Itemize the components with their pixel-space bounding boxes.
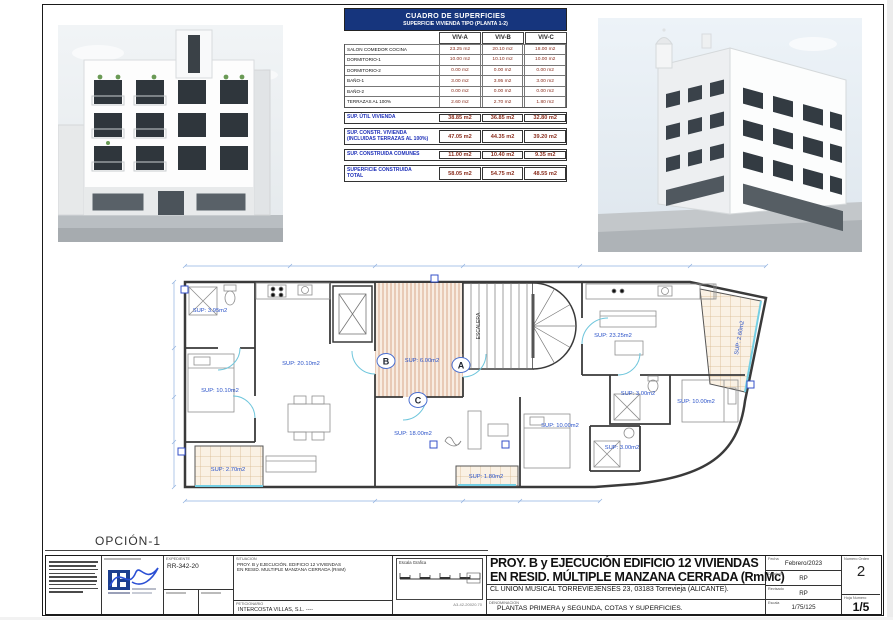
revisado-row: Revisado RP <box>766 586 841 601</box>
project-small-line2: EN RESID. MULTIPLE MANZANA CERRADA (RmM) <box>237 567 389 572</box>
situacion-box: SITUACION PROY. B y EJECUCIÓN. EDIFICIO … <box>234 556 393 614</box>
sheet-code: A3-42-20020.70 <box>393 600 486 607</box>
surface-table-body: SALON COMEDOR COCINA 23.25 m2 20.10 m2 1… <box>344 44 567 109</box>
denominacion-row: DENOMINACION PLANTAS PRIMERA y SEGUNDA, … <box>487 599 765 614</box>
building-render-front <box>58 25 283 247</box>
numero-orden-value: 2 <box>842 563 880 580</box>
project-title-line1: PROY. B y EJECUCIÓN EDIFICIO 12 VIVIENDA… <box>487 556 765 570</box>
surface-table-header: CUADRO DE SUPERFICIES SUPERFICIE VIVIEND… <box>344 8 567 31</box>
hoja-cell: Hoja Numero 1/5 <box>842 595 880 614</box>
peticionario-row: PETICIONARIO INTERCOSTA VILLAS, S.L. ---… <box>234 600 392 614</box>
meta-box: Fecha Febrero/2023 Dibujado RP Revisado … <box>766 556 842 614</box>
fecha-value: Febrero/2023 <box>766 560 841 567</box>
surface-table: CUADRO DE SUPERFICIES SUPERFICIE VIVIEND… <box>344 8 567 182</box>
turret <box>656 44 672 68</box>
summary-row-comunes: SUP. CONSTRUIDA COMUNES 11.00 m2 10.40 m… <box>344 149 567 161</box>
stair-label: ESCALERA <box>476 312 482 339</box>
label-bedroom-c: SUP: 10.00m2 <box>541 423 579 429</box>
label-bedroom-b: SUP: 10.10m2 <box>201 388 239 394</box>
hall-floor <box>375 283 463 397</box>
fecha-row: Fecha Febrero/2023 <box>766 556 841 571</box>
door-tag-a: A <box>458 361 465 371</box>
column-viv-c: VIV-C <box>525 32 567 44</box>
titleblock-top-line <box>45 550 488 551</box>
summary-row-constr: SUP. CONSTR. VIVIENDA (INCLUIDAS TERRAZA… <box>344 128 567 145</box>
disclaimer-text <box>46 556 102 614</box>
render-corner-svg <box>598 18 862 252</box>
sheet-number-box: Numero Orden 2 Hoja Numero 1/5 <box>842 556 880 614</box>
dibujado-row: Dibujado RP <box>766 571 841 586</box>
label-salon-a: SUP: 23.25m2 <box>594 333 632 339</box>
render-front-svg <box>58 25 283 242</box>
table-row: DORMITORIO-1 10.00 m2 10.10 m2 10.00 m2 <box>345 54 566 65</box>
stamp-signature-box <box>102 556 164 614</box>
building-render-corner <box>598 18 862 257</box>
table-row: TERRAZAS AL 100% 2.60 m2 2.70 m2 1.80 m2 <box>345 96 566 107</box>
door-tag-b: B <box>383 357 390 367</box>
table-row: BAÑO-2 0.00 m2 0.00 m2 0.00 m2 <box>345 86 566 97</box>
denominacion-value: PLANTAS PRIMERA y SEGUNDA, COTAS Y SUPER… <box>487 605 765 613</box>
label-bedroom-a: SUP: 10.00m2 <box>677 399 715 405</box>
roof-box <box>702 34 711 48</box>
expediente-subcells <box>164 589 233 614</box>
expediente-value: RR-342-20 <box>164 561 233 572</box>
surface-table-title: CUADRO DE SUPERFICIES <box>346 11 565 20</box>
project-address: CL UNION MUSICAL TORREVIEJENSES 23, 0318… <box>487 584 765 594</box>
escala-value: 1/75/125 <box>766 604 841 611</box>
floor-plan: ESCALERA <box>170 256 770 513</box>
column-viv-b: VIV-B <box>482 32 524 44</box>
expediente-box: EXPEDIENTE RR-342-20 <box>164 556 234 614</box>
table-row: DORMITORIO-2 0.00 m2 0.00 m2 0.00 m2 <box>345 65 566 76</box>
project-title-box: PROY. B y EJECUCIÓN EDIFICIO 12 VIVIENDA… <box>487 556 766 614</box>
escala-row: Escala 1/75/125 <box>766 600 841 614</box>
table-row: BAÑO-1 3.00 m2 3.95 m2 3.00 m2 <box>345 75 566 86</box>
numero-orden-cell: Numero Orden 2 <box>842 556 880 595</box>
stamp-signature-svg <box>102 562 162 608</box>
option-label: OPCIÓN-1 <box>95 534 161 548</box>
scale-bar <box>397 565 483 589</box>
revisado-value: RP <box>766 590 841 597</box>
hoja-value: 1/5 <box>842 600 880 614</box>
page-edge-shadow <box>887 0 893 620</box>
dibujado-value: RP <box>766 575 841 582</box>
label-hall: SUP: 6.00m2 <box>405 358 439 364</box>
label-bath-a: SUP: 3.00m2 <box>621 391 655 397</box>
title-block: EXPEDIENTE RR-342-20 SITUACION PROY. B y… <box>45 555 882 615</box>
label-terrace-c: SUP: 1.80m2 <box>469 474 503 480</box>
surface-table-subtitle: SUPERFICIE VIVIENDA TIPO (PLANTA 1-2) <box>346 21 565 27</box>
table-row: SALON COMEDOR COCINA 23.25 m2 20.10 m2 1… <box>345 44 566 55</box>
floor-plan-svg: ESCALERA <box>170 256 770 508</box>
stamp-label <box>104 558 141 560</box>
label-bath-c: SUP: 3.00m2 <box>605 445 639 451</box>
graphic-scale-box: Escala Grafica A3-42-20020.70 <box>393 556 487 614</box>
column-viv-a: VIV-A <box>439 32 481 44</box>
surface-table-columns: VIV-A VIV-B VIV-C <box>344 32 567 44</box>
label-salon-b: SUP: 20.10m2 <box>282 361 320 367</box>
label-bath-b: SUP: 3.95m2 <box>193 308 227 314</box>
summary-row-util: SUP. ÚTIL VIVIENDA 38.85 m2 36.85 m2 32.… <box>344 112 567 124</box>
project-title-line2: EN RESID. MÚLTIPLE MANZANA CERRADA (RmMc… <box>487 570 765 584</box>
neighbor-wall <box>58 125 84 215</box>
staircase: ESCALERA <box>463 283 576 369</box>
peticionario-value: INTERCOSTA VILLAS, S.L. ---- <box>234 606 392 614</box>
door-tag-c: C <box>415 396 422 406</box>
numero-orden-label: Numero Orden <box>842 556 880 561</box>
label-terrace-b: SUP: 2.70m2 <box>211 467 245 473</box>
elevator <box>333 286 372 342</box>
label-salon-c: SUP: 18.00m2 <box>394 431 432 437</box>
summary-row-total: SUPERFICIE CONSTRUIDA TOTAL 58.05 m2 54.… <box>344 165 567 182</box>
